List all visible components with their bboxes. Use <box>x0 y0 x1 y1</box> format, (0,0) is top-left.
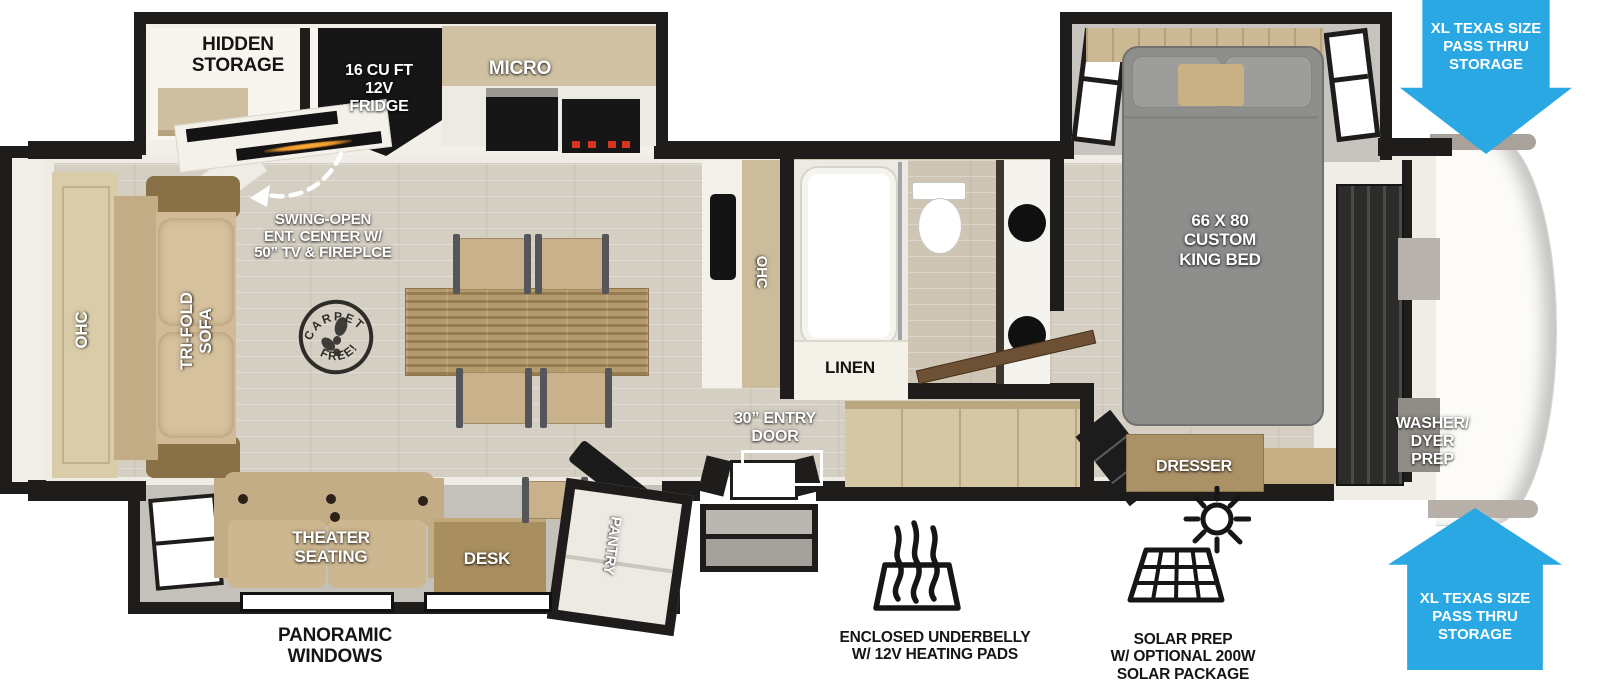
floorplan: SWING-OPEN ENT. CENTER W/ 50” TV & FIREP… <box>0 0 1600 688</box>
dresser-label: DRESSER <box>1134 456 1254 478</box>
bedroom-slideout-wall-top <box>1060 12 1392 24</box>
bath-wall-left <box>780 157 794 399</box>
dining-chair <box>542 372 610 424</box>
toilet-bowl <box>918 198 962 254</box>
cap-cabinet-gray-1 <box>1398 238 1440 300</box>
pass-thru-arrow-top: XL TEXAS SIZE PASS THRU STORAGE <box>1400 0 1572 154</box>
pass-thru-arrow-bottom: XL TEXAS SIZE PASS THRU STORAGE <box>1388 508 1562 670</box>
entry-steps <box>700 504 818 572</box>
pantry-label: PANTRY <box>592 485 630 607</box>
panoramic-windows-label: PANORAMIC WINDOWS <box>225 620 445 674</box>
corner-window <box>148 493 224 591</box>
rear-ohc-label: OHC <box>71 270 93 390</box>
carpet-free-stamp-icon: CARPET FREE! <box>289 290 384 385</box>
micro-label: MICRO <box>448 56 592 82</box>
heat-pads-icon <box>862 510 972 616</box>
king-bed-label: 66 X 80 CUSTOM KING BED <box>1140 208 1300 272</box>
theater-cupholders <box>238 494 248 504</box>
underbelly-label: ENCLOSED UNDERBELLY W/ 12V HEATING PADS <box>828 622 1042 670</box>
sofa-back <box>114 196 158 460</box>
hall-wardrobe <box>845 401 1080 487</box>
kitchen-slideout-wall-left <box>134 12 146 158</box>
shower-tub <box>800 166 898 346</box>
vanity-sink-1 <box>1008 204 1046 242</box>
sofa-label: TRI-FOLD SOFA <box>175 251 217 411</box>
shower-glass <box>898 162 902 348</box>
swing-note-label: SWING-OPEN ENT. CENTER W/ 50” TV & FIREP… <box>234 210 412 264</box>
pass-thru-top-label: XL TEXAS SIZE PASS THRU STORAGE <box>1412 6 1560 88</box>
bedroom-wall-upper <box>1050 157 1064 311</box>
dining-chair <box>455 238 529 290</box>
entry-door-label: 30” ENTRY DOOR <box>690 406 860 450</box>
dining-table <box>405 288 649 376</box>
pass-thru-bottom-label: XL TEXAS SIZE PASS THRU STORAGE <box>1410 572 1540 662</box>
kitchen-slideout-wall-top <box>134 12 668 24</box>
kitchen-ohc-label: OHC <box>750 212 772 332</box>
main-wall-top-mid <box>654 141 1074 159</box>
range-vent <box>486 88 558 97</box>
kitchen-slideout-wall-right <box>656 12 668 160</box>
panoramic-window-2 <box>424 592 552 612</box>
bedroom-step-tread-1 <box>1094 433 1130 462</box>
linen-label: LINEN <box>800 355 900 381</box>
panoramic-window-1 <box>240 592 394 612</box>
washer-dryer-prep-label: WASHER/ DYER PREP <box>1360 408 1505 476</box>
hidden-storage-label: HIDDEN STORAGE <box>158 30 318 82</box>
theater-label: THEATER SEATING <box>251 524 411 570</box>
solar-label: SOLAR PREP W/ OPTIONAL 200W SOLAR PACKAG… <box>1072 628 1294 686</box>
main-wall-bottom-left <box>28 481 146 501</box>
pantry: PANTRY <box>547 478 694 636</box>
bedroom-slideout-wall-left <box>1060 12 1072 160</box>
desk-label: DESK <box>447 548 527 570</box>
kitchen-sink <box>710 194 736 280</box>
entry-step-upper <box>706 510 812 534</box>
bed-seam <box>1124 116 1318 119</box>
solar-prep-icon <box>1116 486 1251 608</box>
stove-burners <box>572 141 580 148</box>
bed-throw <box>1178 64 1244 106</box>
bed-foot-bench <box>1258 448 1342 484</box>
main-wall-left-stub-top <box>28 141 46 158</box>
swing-open-arrow-icon <box>238 148 348 218</box>
dining-chair <box>458 372 530 424</box>
fridge-label: 16 CU FT 12V FRIDGE <box>320 54 438 124</box>
entry-step-divider <box>706 534 812 539</box>
corner-window-bar <box>156 536 216 545</box>
main-wall-top-right <box>1378 138 1452 156</box>
dining-chair <box>537 238 607 290</box>
microwave-unit <box>486 97 558 151</box>
theater-seat-back <box>224 472 434 526</box>
door-width-bracket <box>741 450 823 486</box>
rear-slideout-wall-left <box>0 146 12 494</box>
